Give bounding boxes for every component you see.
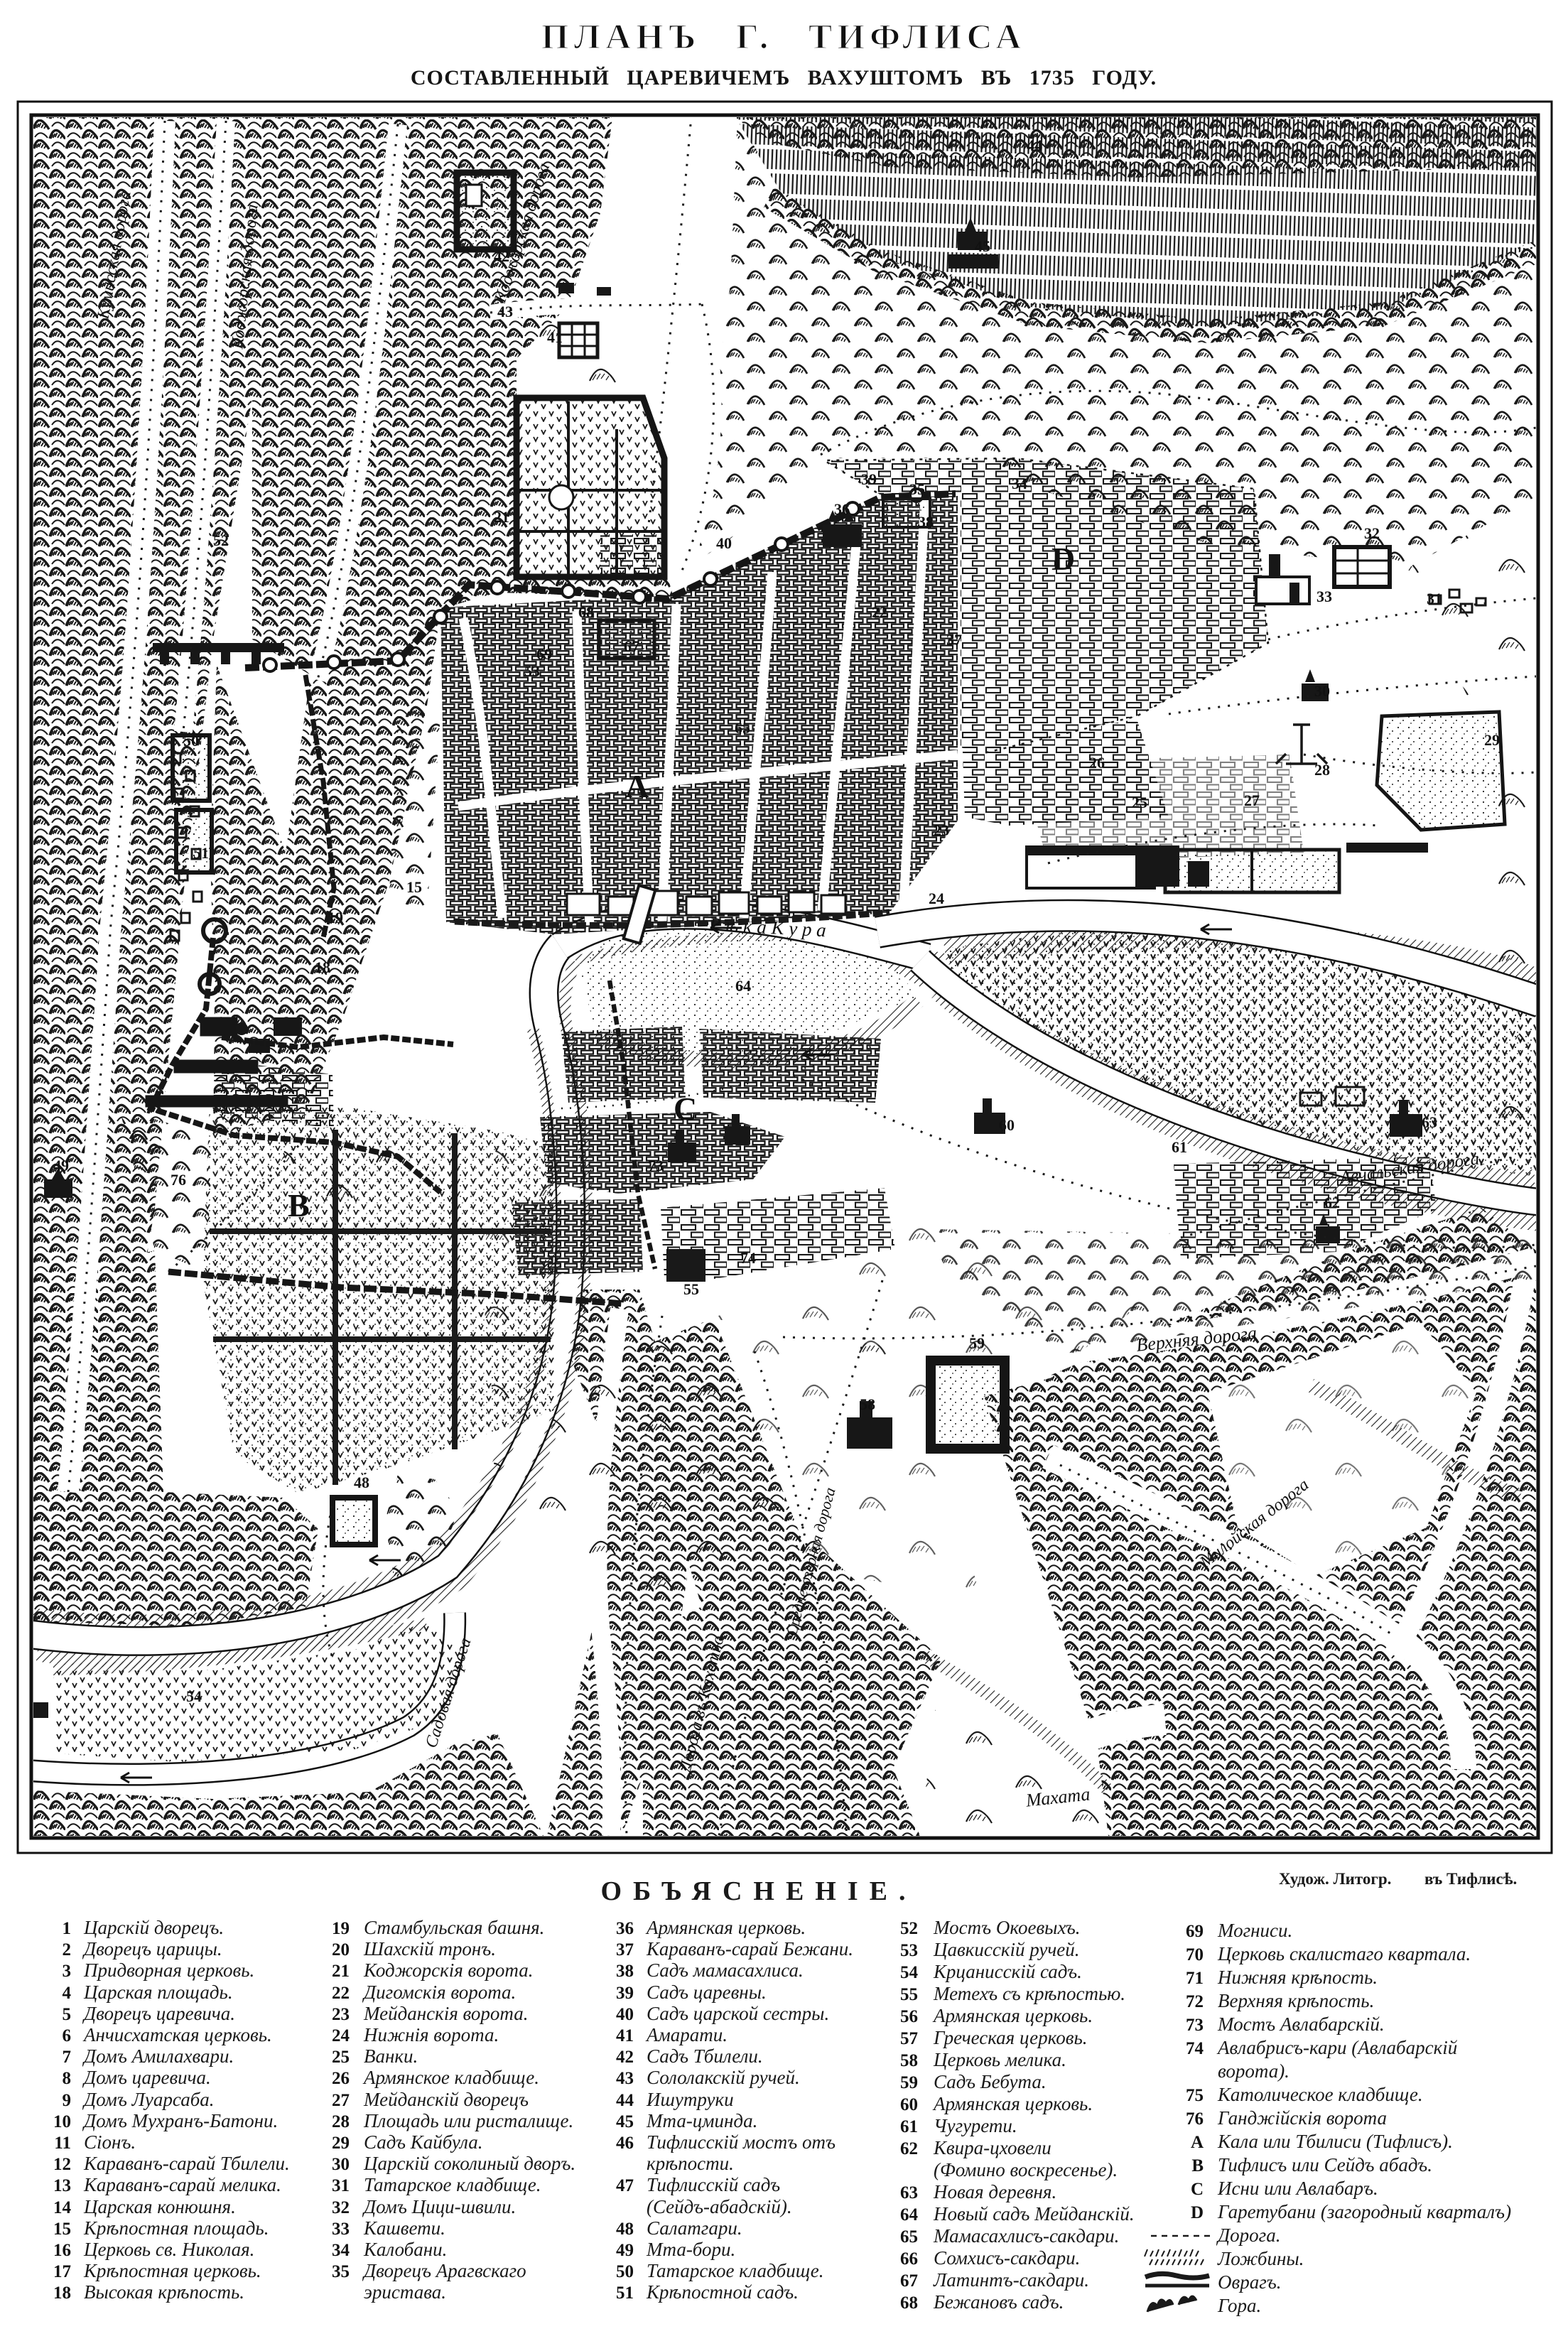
svg-text:43: 43 [616,2069,634,2088]
svg-text:56: 56 [900,2007,918,2026]
svg-text:37: 37 [946,631,962,649]
svg-text:Дорога.: Дорога. [1216,2225,1280,2246]
svg-text:29: 29 [332,2134,350,2153]
svg-text:29: 29 [1484,731,1500,749]
svg-text:Сололакскій ручей.: Сололакскій ручей. [647,2067,800,2088]
svg-text:28: 28 [332,2112,350,2131]
svg-text:Тифлисскій мостъ отъ: Тифлисскій мостъ отъ [647,2131,836,2153]
svg-text:Худож. Литогр.: Худож. Литогр. [1279,1870,1391,1888]
svg-text:65: 65 [735,719,750,737]
svg-text:Домъ Цици-швили.: Домъ Цици-швили. [362,2196,516,2217]
svg-text:20: 20 [332,1940,350,1959]
svg-text:68: 68 [578,603,594,621]
svg-text:50: 50 [616,2262,634,2281]
svg-text:Сомхисъ-сакдари.: Сомхисъ-сакдари. [934,2247,1080,2269]
svg-text:23: 23 [332,2005,350,2024]
svg-text:69: 69 [1186,1922,1204,1941]
svg-text:57: 57 [900,2029,918,2048]
svg-text:73: 73 [1186,2016,1204,2035]
svg-text:Гаретубани (загородный квартал: Гаретубани (загородный кварталъ) [1217,2201,1511,2222]
svg-text:Цавкисскій ручей.: Цавкисскій ручей. [933,1939,1079,1960]
svg-text:76: 76 [171,1171,186,1189]
svg-text:D: D [1051,541,1075,577]
svg-text:42: 42 [616,2048,634,2067]
svg-text:Мостъ Окоевыхъ.: Мостъ Окоевыхъ. [933,1917,1081,1938]
svg-text:61: 61 [900,2117,918,2136]
svg-text:9: 9 [63,2091,72,2110]
svg-text:26: 26 [332,2069,350,2088]
svg-text:39: 39 [616,1984,634,2003]
svg-text:59: 59 [969,1334,985,1352]
svg-text:68: 68 [900,2293,918,2313]
svg-text:Мейданскія ворота.: Мейданскія ворота. [363,2003,529,2024]
svg-text:Крѣпостная церковь.: Крѣпостная церковь. [83,2260,261,2281]
svg-text:18: 18 [53,2283,71,2303]
svg-text:Метехъ съ крѣпостью.: Метехъ съ крѣпостью. [933,1983,1125,2004]
svg-text:43: 43 [497,303,513,320]
svg-text:55: 55 [900,1985,918,2004]
svg-text:ОБЪЯСНЕНІЕ.: ОБЪЯСНЕНІЕ. [600,1876,917,1906]
svg-text:69: 69 [536,645,552,663]
svg-text:47: 47 [616,2176,634,2195]
svg-text:75: 75 [1186,2086,1204,2105]
svg-text:76: 76 [1186,2109,1204,2129]
svg-text:Латинтъ-сакдари.: Латинтъ-сакдари. [933,2269,1089,2291]
svg-text:Тифлисъ или Сейдъ абадъ.: Тифлисъ или Сейдъ абадъ. [1218,2154,1432,2175]
svg-text:41: 41 [616,2026,634,2045]
svg-text:11: 11 [54,2134,71,2153]
svg-text:45: 45 [616,2112,634,2131]
svg-text:C: C [674,1091,697,1127]
svg-text:36: 36 [616,1919,634,1938]
svg-text:Крѣпостной садъ.: Крѣпостной садъ. [646,2281,799,2303]
svg-text:12: 12 [53,2155,71,2174]
svg-text:Новая деревня.: Новая деревня. [933,2181,1056,2202]
svg-text:Царскій дворецъ.: Царскій дворецъ. [83,1917,224,1938]
svg-text:70: 70 [1186,1945,1204,1964]
svg-text:67: 67 [900,2271,918,2291]
svg-text:40: 40 [716,534,732,552]
svg-text:19: 19 [328,909,343,926]
svg-text:Садъ царевны.: Садъ царевны. [647,1982,767,2003]
svg-text:Садъ царской сестры.: Садъ царской сестры. [647,2003,829,2024]
svg-text:17: 17 [53,2262,71,2281]
svg-text:10: 10 [53,2112,71,2131]
svg-text:49: 49 [616,2241,634,2260]
svg-text:61: 61 [1172,1138,1187,1156]
svg-text:31: 31 [332,2176,350,2195]
svg-text:Дворецъ царицы.: Дворецъ царицы. [82,1938,222,1959]
svg-text:25: 25 [332,2048,350,2067]
svg-text:27: 27 [332,2091,350,2110]
svg-text:38: 38 [918,513,934,531]
svg-text:62: 62 [1324,1194,1340,1211]
svg-text:34: 34 [1012,475,1027,492]
svg-text:34: 34 [332,2241,350,2260]
svg-text:51: 51 [193,844,209,862]
svg-text:Домъ Амилахвари.: Домъ Амилахвари. [82,2045,234,2067]
svg-text:Нижнія ворота.: Нижнія ворота. [363,2024,499,2045]
svg-text:25: 25 [1132,794,1147,811]
svg-text:Коджорскія ворота.: Коджорскія ворота. [363,1959,534,1981]
svg-text:Армянская церковь.: Армянская церковь. [932,2093,1093,2114]
svg-text:Церковь скалистаго квартала.: Церковь скалистаго квартала. [1217,1943,1471,1964]
svg-text:16: 16 [53,2241,71,2260]
svg-text:35: 35 [909,480,925,498]
svg-text:2: 2 [63,1940,72,1959]
svg-text:58: 58 [860,1395,875,1413]
svg-text:33: 33 [1316,588,1332,605]
svg-text:Бежановъ садъ.: Бежановъ садъ. [933,2291,1064,2313]
svg-text:Кашвети.: Кашвети. [363,2217,445,2239]
svg-text:Царская конюшня.: Царская конюшня. [83,2196,236,2217]
svg-text:крѣпости.: крѣпости. [647,2153,734,2174]
svg-text:Оврагъ.: Оврагъ. [1218,2271,1282,2293]
svg-text:Крѣпостная площадь.: Крѣпостная площадь. [83,2217,269,2239]
svg-text:22: 22 [872,603,887,621]
svg-text:30: 30 [1314,682,1330,700]
svg-text:53: 53 [524,662,540,680]
svg-text:Амарати.: Амарати. [645,2024,728,2045]
svg-text:Чугурети.: Чугурети. [934,2115,1017,2136]
svg-text:32: 32 [332,2198,350,2217]
svg-text:Исни или Авлабаръ.: Исни или Авлабаръ. [1217,2178,1378,2199]
svg-text:52: 52 [900,1919,918,1938]
svg-text:63: 63 [1422,1113,1437,1131]
svg-text:Ганджійскія ворота: Ганджійскія ворота [1217,2107,1387,2129]
svg-text:Ложбины.: Ложбины. [1217,2248,1304,2269]
svg-text:28: 28 [1314,761,1330,779]
svg-text:Царская площадь.: Царская площадь. [83,1982,233,2003]
svg-text:Нижняя крѣпость.: Нижняя крѣпость. [1217,1967,1378,1988]
svg-text:Дигомскія ворота.: Дигомскія ворота. [362,1982,516,2003]
svg-text:60: 60 [900,2095,918,2114]
svg-text:50: 50 [183,732,199,750]
svg-text:13: 13 [53,2176,71,2195]
svg-text:62: 62 [900,2139,918,2158]
svg-text:Мта-бори.: Мта-бори. [646,2239,735,2260]
svg-text:Крцанисскій садъ.: Крцанисскій садъ. [933,1961,1082,1982]
svg-text:48: 48 [616,2220,634,2239]
svg-text:Садъ Кайбула.: Садъ Кайбула. [364,2131,483,2153]
svg-text:Придворная церковь.: Придворная церковь. [83,1959,254,1981]
svg-text:Домъ царевича.: Домъ царевича. [82,2067,211,2088]
svg-text:7: 7 [63,2048,72,2067]
svg-text:5: 5 [63,2005,72,2024]
svg-text:Квира-цховели: Квира-цховели [933,2137,1051,2158]
svg-text:30: 30 [332,2155,350,2174]
svg-text:36: 36 [834,500,850,518]
svg-text:22: 22 [332,1984,350,2003]
svg-text:Садъ Бебута.: Садъ Бебута. [934,2071,1047,2092]
svg-text:Греческая церковь.: Греческая церковь. [933,2027,1088,2048]
svg-text:Мейданскій дворецъ: Мейданскій дворецъ [363,2089,529,2110]
svg-text:23: 23 [934,821,949,839]
svg-text:49: 49 [53,1157,69,1174]
svg-text:C: C [1191,2180,1204,2199]
svg-text:Анчисхатская церковь.: Анчисхатская церковь. [82,2024,272,2045]
svg-text:Садъ мамасахлиса.: Садъ мамасахлиса. [647,1959,804,1981]
svg-text:35: 35 [332,2262,350,2281]
svg-text:Могниси.: Могниси. [1217,1920,1292,1941]
svg-text:Церковь св. Николая.: Церковь св. Николая. [83,2239,254,2260]
svg-text:21: 21 [494,508,509,526]
svg-text:Мамасахлисъ-сакдари.: Мамасахлисъ-сакдари. [933,2225,1119,2247]
svg-text:51: 51 [616,2283,634,2303]
svg-text:32: 32 [1364,524,1380,542]
svg-text:4: 4 [63,1984,72,2003]
svg-text:Стамбульская башня.: Стамбульская башня. [364,1917,544,1938]
svg-text:Сіонъ.: Сіонъ. [84,2131,136,2153]
svg-text:24: 24 [929,890,944,907]
svg-text:59: 59 [900,2073,918,2092]
svg-text:Армянское кладбище.: Армянское кладбище. [362,2067,539,2088]
svg-text:Татарское кладбище.: Татарское кладбище. [647,2260,824,2281]
svg-text:31: 31 [1427,590,1442,607]
svg-text:6: 6 [63,2026,72,2045]
svg-text:65: 65 [900,2227,918,2247]
svg-text:72: 72 [1186,1992,1204,2011]
svg-text:44: 44 [1027,136,1042,154]
svg-text:Шахскій тронъ.: Шахскій тронъ. [363,1938,496,1959]
svg-text:Тифлисскій садъ: Тифлисскій садъ [647,2174,780,2195]
svg-text:Верхняя крѣпость.: Верхняя крѣпость. [1218,1990,1374,2011]
svg-text:Садъ Тбилели.: Садъ Тбилели. [647,2045,763,2067]
svg-text:ПЛАНЪ Г. ТИФЛИСА: ПЛАНЪ Г. ТИФЛИСА [541,16,1026,56]
svg-text:1: 1 [63,1919,72,1938]
svg-text:Мостъ Авлабарскій.: Мостъ Авлабарскій. [1217,2013,1385,2035]
svg-text:Церковь мелика.: Церковь мелика. [933,2049,1066,2070]
svg-text:Площадь или ристалище.: Площадь или ристалище. [363,2110,573,2131]
svg-text:Караванъ-сарай Тбилели.: Караванъ-сарай Тбилели. [83,2153,290,2174]
svg-text:Царскій соколиный дворъ.: Царскій соколиный дворъ. [363,2153,575,2174]
svg-text:Салатгари.: Салатгари. [647,2217,742,2239]
svg-text:ворота).: ворота). [1218,2060,1289,2082]
svg-text:53: 53 [900,1941,918,1960]
svg-text:(Сейдъ-абадскій).: (Сейдъ-абадскій). [647,2196,792,2217]
svg-text:Караванъ-сарай Бежани.: Караванъ-сарай Бежани. [646,1938,853,1959]
svg-text:60: 60 [999,1116,1015,1134]
svg-text:B: B [1191,2156,1204,2175]
svg-text:Армянская церковь.: Армянская церковь. [645,1917,806,1938]
svg-text:Армянская церковь.: Армянская церковь. [932,2005,1093,2026]
svg-text:D: D [1191,2203,1204,2222]
svg-text:15: 15 [406,878,422,896]
svg-text:СОСТАВЛЕННЫЙ ЦАРЕВИЧЕМЪ ВАХ: СОСТАВЛЕННЫЙ ЦАРЕВИЧЕМЪ ВАХУШТОМЪ ВЪ 173… [411,66,1157,90]
svg-text:64: 64 [900,2205,919,2225]
svg-text:Дворецъ Арагвскаго: Дворецъ Арагвскаго [362,2260,526,2281]
svg-text:64: 64 [735,977,751,995]
svg-text:3: 3 [63,1962,72,1981]
svg-text:74: 74 [740,1249,756,1267]
svg-text:Авлабрисъ-кари (Авлабарскій: Авлабрисъ-кари (Авлабарскій [1216,2037,1458,2058]
svg-text:A: A [1191,2133,1204,2152]
svg-text:66: 66 [900,2249,918,2269]
svg-text:Татарское кладбище.: Татарское кладбище. [364,2174,541,2195]
svg-text:Караванъ-сарай мелика.: Караванъ-сарай мелика. [83,2174,281,2195]
svg-text:46: 46 [616,2134,634,2153]
svg-text:40: 40 [616,2005,634,2024]
svg-text:54: 54 [900,1963,919,1982]
svg-text:73: 73 [648,1157,664,1174]
svg-text:71: 71 [1186,1969,1204,1988]
svg-text:54: 54 [186,1687,202,1705]
svg-text:45: 45 [975,237,990,255]
svg-text:37: 37 [616,1940,634,1959]
svg-text:Ишутруки: Ишутруки [646,2089,734,2110]
svg-text:26: 26 [1089,754,1105,772]
svg-text:24: 24 [332,2026,350,2045]
svg-text:14: 14 [53,2198,72,2217]
svg-text:(Фомино воскресенье).: (Фомино воскресенье). [934,2159,1118,2180]
svg-text:Высокая крѣпость.: Высокая крѣпость. [84,2281,244,2303]
svg-text:41: 41 [547,328,563,346]
svg-text:Дворецъ царевича.: Дворецъ царевича. [82,2003,235,2024]
svg-text:58: 58 [900,2051,918,2070]
svg-text:74: 74 [1186,2039,1204,2058]
svg-text:63: 63 [900,2183,918,2202]
svg-text:Калобани.: Калобани. [363,2239,447,2260]
svg-text:48: 48 [354,1474,369,1491]
svg-text:Католическое кладбище.: Католическое кладбище. [1217,2084,1423,2105]
svg-text:Кала или Тбилиси (Тифлисъ).: Кала или Тбилиси (Тифлисъ). [1217,2131,1453,2152]
svg-text:44: 44 [616,2091,634,2110]
svg-text:B: B [288,1187,310,1223]
svg-text:67: 67 [624,637,639,655]
svg-text:55: 55 [683,1280,699,1298]
svg-text:Домъ Луарсаба.: Домъ Луарсаба. [82,2089,215,2110]
svg-text:18: 18 [315,958,330,976]
svg-text:въ Тифлисѣ.: въ Тифлисѣ. [1424,1870,1517,1888]
svg-text:27: 27 [1244,791,1260,809]
svg-text:Гора.: Гора. [1217,2295,1261,2316]
svg-text:19: 19 [332,1919,350,1938]
svg-text:Новый садъ Мейданскій.: Новый садъ Мейданскій. [933,2203,1135,2225]
svg-text:Ванки.: Ванки. [364,2045,418,2067]
svg-text:52: 52 [213,531,229,549]
svg-text:A: A [625,768,649,804]
svg-text:15: 15 [53,2220,71,2239]
svg-text:эристава.: эристава. [364,2281,446,2303]
svg-text:8: 8 [63,2069,72,2088]
svg-text:38: 38 [616,1962,634,1981]
svg-text:33: 33 [332,2220,350,2239]
svg-text:21: 21 [332,1962,350,1981]
svg-text:Домъ Мухранъ-Батони.: Домъ Мухранъ-Батони. [82,2110,278,2131]
svg-text:39: 39 [861,470,877,488]
svg-text:Мта-цминда.: Мта-цминда. [646,2110,757,2131]
